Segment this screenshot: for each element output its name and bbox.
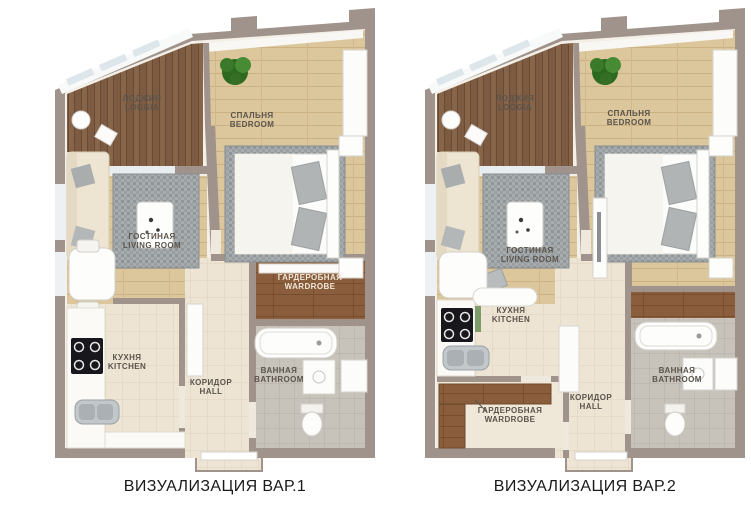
nightstand [709,136,733,156]
room-label-bedroom: СПАЛЬНЯBEDROOM [607,109,652,127]
washer [715,358,737,390]
hall-cabinet [559,326,579,392]
room-label-bathroom: ВАННАЯBATHROOM [652,366,702,384]
entrance-door [201,452,257,460]
bedroom-closet [713,50,737,136]
stove [71,338,103,374]
washer [341,360,367,392]
room-label-loggia: ЛОДЖИЯLOGGIA [496,94,535,112]
stove [441,308,473,342]
caption-variant-2: ВИЗУАЛИЗАЦИЯ ВАР.2 [425,478,745,496]
toilet [665,404,685,436]
nightstand [339,136,363,156]
bath-sink [303,360,335,394]
kitchen-counter [105,432,185,448]
toilet [301,404,323,436]
floor-plan-visualization: ЛОДЖИЯLOGGIA СПАЛЬНЯBEDROOM ГОСТИНАЯLIVI… [0,0,751,506]
room-label-hall: КОРИДОРHALL [570,393,612,411]
kitchen-sink [75,400,119,424]
entrance-door [575,452,627,460]
kitchen-peninsula [473,288,537,306]
sofa [437,152,479,260]
room-label-bedroom: СПАЛЬНЯBEDROOM [230,111,275,129]
room-label-kitchen: КУХНЯKITCHEN [108,353,146,371]
room-label-hall: КОРИДОРHALL [190,378,232,396]
bedroom-closet [343,50,367,136]
nightstand [709,258,733,278]
room-label-kitchen: КУХНЯKITCHEN [492,306,530,324]
tv-console [593,198,607,278]
room-label-wardrobe: ГАРДЕРОБНАЯWARDROBE [478,406,543,424]
kitchen-counter [67,308,105,448]
plan1-drawing [55,8,375,482]
bathtub [255,328,337,358]
coffee-table [507,202,543,248]
loggia-table [72,111,90,129]
bed [235,150,339,258]
loggia-table [442,111,460,129]
room-label-loggia: ЛОДЖИЯLOGGIA [123,94,162,112]
hall-cabinet [187,304,203,376]
bathtub [635,322,717,350]
room-label-wardrobe: ГАРДЕРОБНАЯWARDROBE [278,273,343,291]
caption-variant-1: ВИЗУАЛИЗАЦИЯ ВАР.1 [55,478,375,496]
kitchen-towel [475,306,481,332]
room-label-living-room: ГОСТИНАЯLIVING ROOM [501,246,559,264]
nightstand [339,258,363,278]
room-label-bathroom: ВАННАЯBATHROOM [254,366,304,384]
kitchen-sink [443,346,489,370]
room-label-living-room: ГОСТИНАЯLIVING ROOM [123,232,181,250]
floor-plan-variant-1: ЛОДЖИЯLOGGIA СПАЛЬНЯBEDROOM ГОСТИНАЯLIVI… [55,8,375,482]
floor-plan-variant-2: ЛОДЖИЯLOGGIA СПАЛЬНЯBEDROOM ГОСТИНАЯLIVI… [425,8,745,482]
bed [605,150,709,258]
